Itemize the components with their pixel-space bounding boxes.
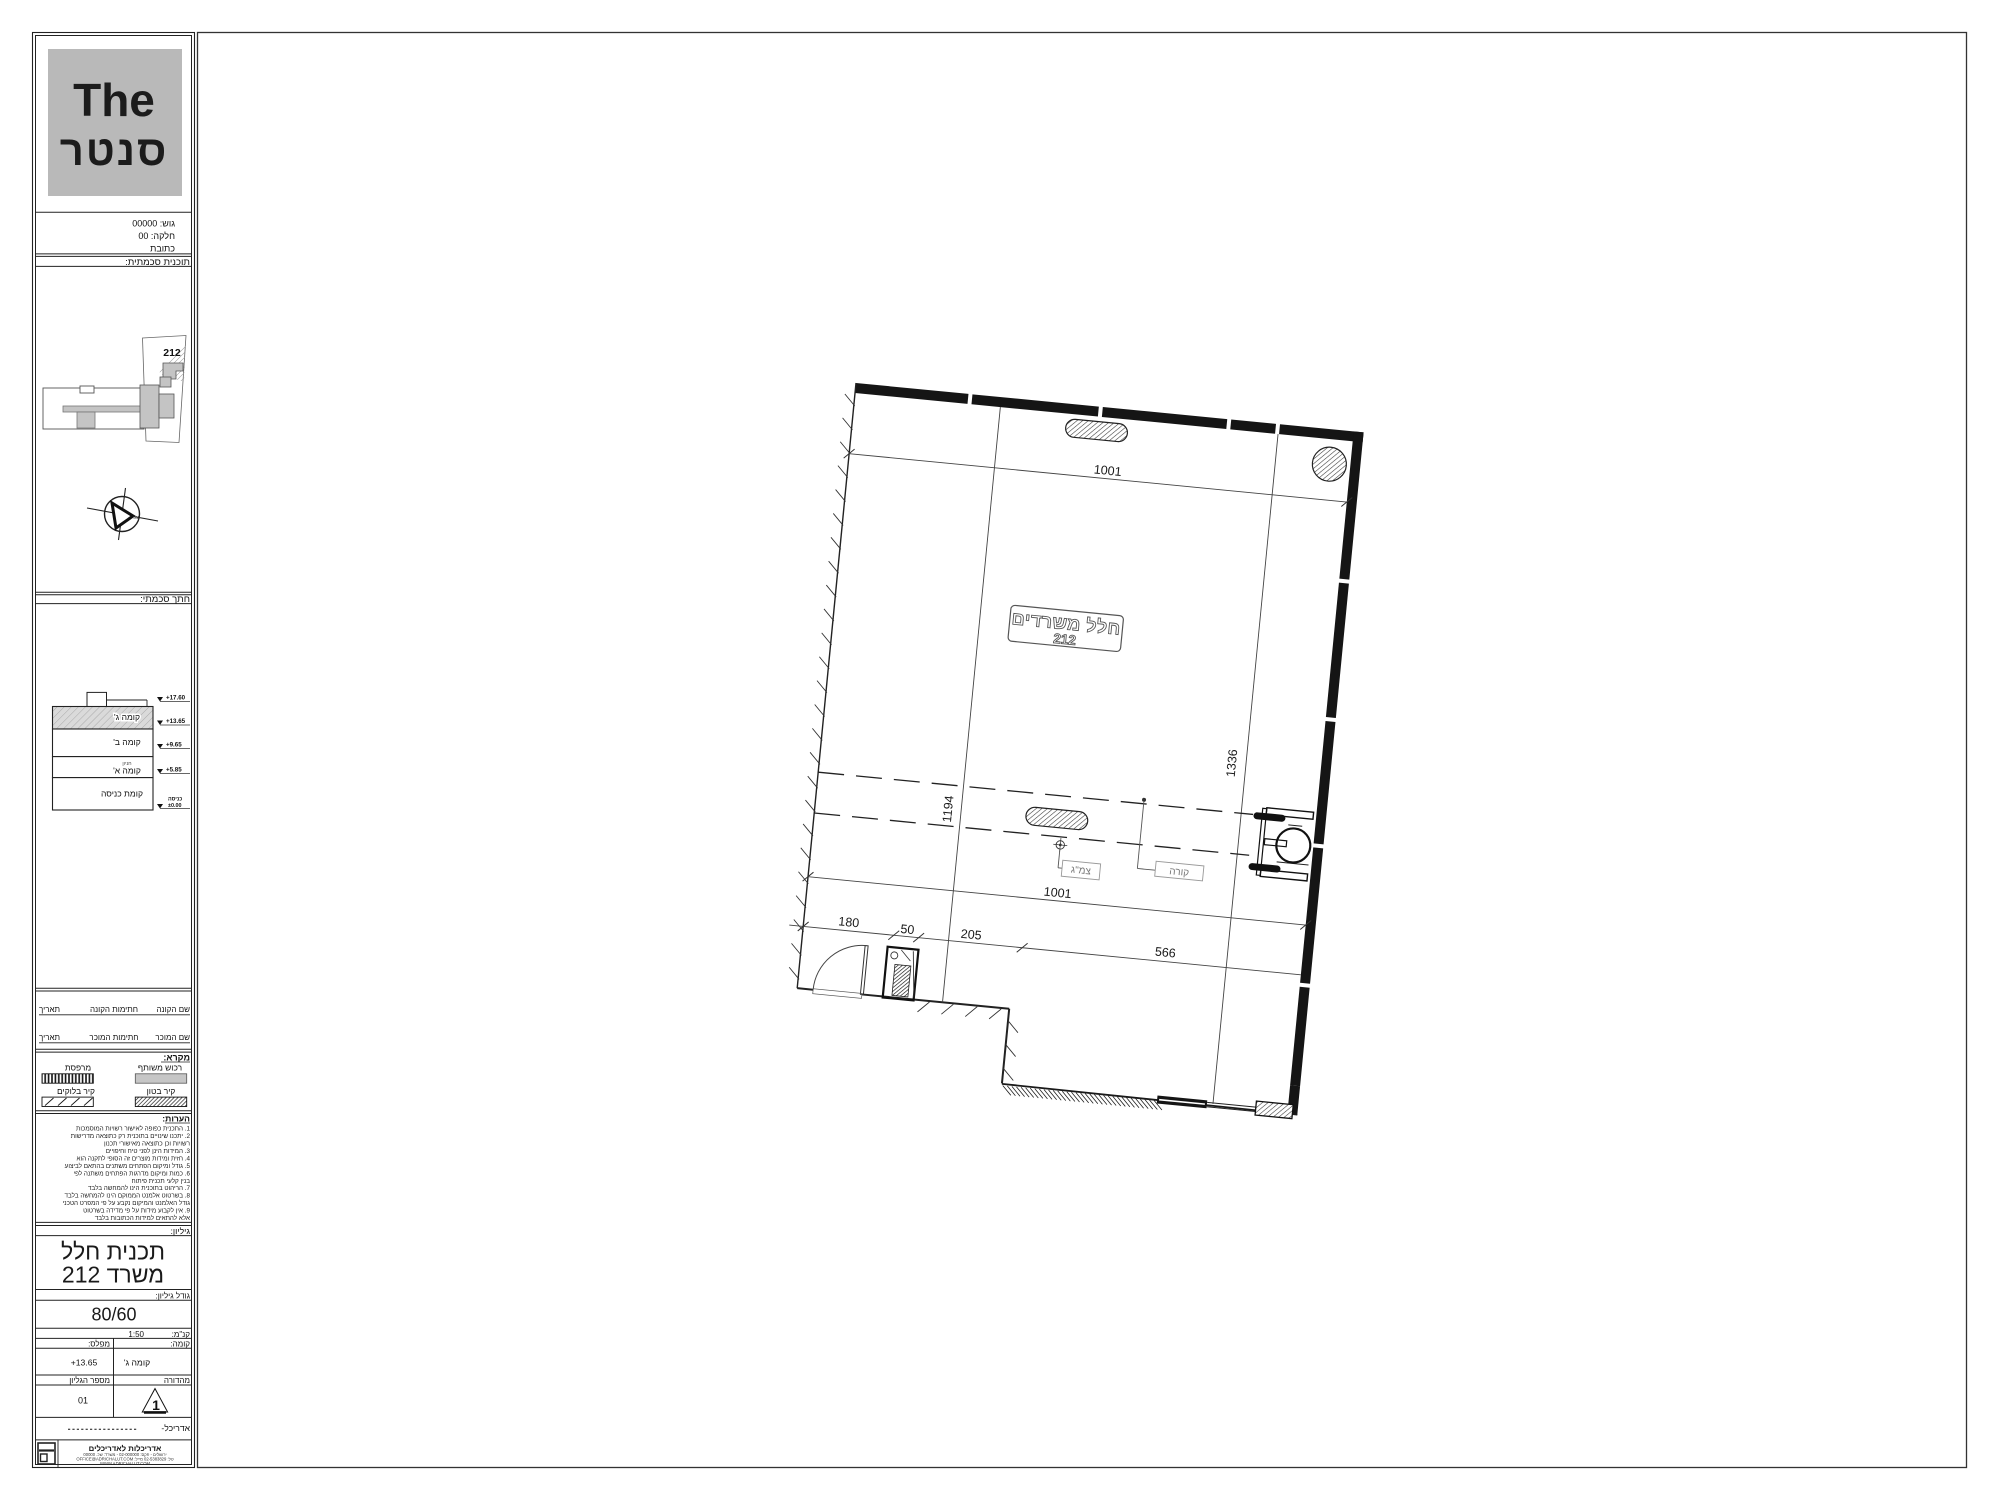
svg-text:קנ"מ:: קנ"מ: xyxy=(172,1330,191,1339)
svg-text:1001: 1001 xyxy=(1043,885,1072,902)
svg-text:קומת כניסה: קומת כניסה xyxy=(101,789,143,799)
svg-text:בנין קלעי תכנית פיתוח: בנין קלעי תכנית פיתוח xyxy=(132,1177,191,1185)
svg-text:שם המוכר: שם המוכר xyxy=(155,1033,190,1042)
svg-text:+13.65: +13.65 xyxy=(166,718,186,725)
svg-text:חתימות המוכר: חתימות המוכר xyxy=(89,1033,138,1042)
svg-text:80/60: 80/60 xyxy=(91,1305,136,1325)
svg-text:1: 1 xyxy=(152,1397,160,1413)
svg-text:205: 205 xyxy=(960,927,982,943)
svg-text:תאריך: תאריך xyxy=(39,1033,60,1042)
svg-text:1:50: 1:50 xyxy=(128,1330,144,1339)
svg-text:מספר הגליון: מספר הגליון xyxy=(69,1376,110,1385)
svg-text:כניסה: כניסה xyxy=(168,797,182,803)
svg-text:+9.65: +9.65 xyxy=(166,742,182,749)
svg-text:צמ"ג: צמ"ג xyxy=(1070,865,1092,878)
svg-text:1336: 1336 xyxy=(1224,749,1241,778)
svg-text:566: 566 xyxy=(1154,945,1176,961)
svg-text:2. יתכנו שינויים בתוכנית רק כת: 2. יתכנו שינויים בתוכנית רק כתוצאה מדריש… xyxy=(71,1133,191,1140)
svg-text:תאריך: תאריך xyxy=(39,1005,60,1014)
svg-text:9. אין לקבוע מידות על פי מדידה: 9. אין לקבוע מידות על פי מדידה בשרטוט xyxy=(83,1207,190,1215)
svg-text:קומה:: קומה: xyxy=(170,1339,190,1348)
svg-text:כתובת: כתובת xyxy=(150,244,175,254)
svg-text:+13.65: +13.65 xyxy=(71,1358,98,1368)
svg-text:212: 212 xyxy=(163,347,181,359)
svg-text:שם הקונה: שם הקונה xyxy=(156,1005,190,1014)
svg-text:01: 01 xyxy=(78,1396,88,1406)
svg-text:7. הריהוט בתוכנית הינו להמחשה: 7. הריהוט בתוכנית הינו להמחשה בלבד xyxy=(88,1184,191,1192)
svg-text:212: 212 xyxy=(1053,631,1077,648)
svg-text:+17.60: +17.60 xyxy=(166,695,186,702)
svg-text:קומה ג': קומה ג' xyxy=(114,712,140,722)
svg-text:קומה ג': קומה ג' xyxy=(124,1358,150,1368)
svg-text:קיר בטון: קיר בטון xyxy=(147,1086,176,1096)
svg-text:מקרא:: מקרא: xyxy=(163,1053,190,1063)
svg-text:גוש: 00000: גוש: 00000 xyxy=(132,219,175,229)
svg-text:הערות:: הערות: xyxy=(162,1114,190,1124)
svg-text:סנטר: סנטר xyxy=(60,127,169,174)
svg-text:1001: 1001 xyxy=(1093,462,1122,479)
svg-text:+5.85: +5.85 xyxy=(166,767,182,774)
svg-text:קומה ב': קומה ב' xyxy=(113,737,141,747)
svg-text:מפלס:: מפלס: xyxy=(88,1339,110,1348)
svg-text:גודל האלמנט והמיקום נקבע על פי: גודל האלמנט והמיקום נקבע על פי המפרט הטכ… xyxy=(63,1199,191,1207)
svg-text:5. גודל ומיקום הפתחים משתנים ב: 5. גודל ומיקום הפתחים משתנים בהתאם לביצו… xyxy=(65,1162,191,1170)
svg-text:3. המידות הינן לפני טיח וחיפוי: 3. המידות הינן לפני טיח וחיפויים xyxy=(106,1147,191,1155)
svg-text:משרד 212: משרד 212 xyxy=(62,1262,164,1288)
svg-text:180: 180 xyxy=(838,914,860,930)
svg-text:6. כמות ומיקום מדרגות הפתחים מ: 6. כמות ומיקום מדרגות הפתחים משתנה לפי xyxy=(73,1169,190,1177)
svg-text:גיליון:: גיליון: xyxy=(170,1226,190,1236)
svg-text:קומה א': קומה א' xyxy=(113,766,141,776)
svg-text:צפ: צפ xyxy=(133,515,139,521)
svg-text:אדריכל-: אדריכל- xyxy=(161,1423,190,1433)
svg-text:50: 50 xyxy=(900,922,915,937)
svg-text:אלא להתאים למידות הכתובות בלבד: אלא להתאים למידות הכתובות בלבד xyxy=(95,1214,190,1222)
svg-text:חלקה: 00: חלקה: 00 xyxy=(138,231,175,241)
svg-text:מרפסת: מרפסת xyxy=(65,1063,92,1073)
svg-text:מהדורה: מהדורה xyxy=(164,1376,190,1385)
svg-text:±0.00: ±0.00 xyxy=(168,803,181,809)
svg-text:4. חזית ומידות מוצרים זה הסופי: 4. חזית ומידות מוצרים זה הסופי לתקנה הוא xyxy=(77,1154,191,1162)
svg-text:The: The xyxy=(73,74,155,126)
svg-text:1. התכנית כפופה לאישור רשויות: 1. התכנית כפופה לאישור רשויות המוסמכות xyxy=(76,1125,190,1133)
svg-text:1194: 1194 xyxy=(940,795,957,823)
svg-text:קיר בלוקים: קיר בלוקים xyxy=(57,1086,95,1096)
svg-text:גודל גיליון:: גודל גיליון: xyxy=(155,1292,190,1301)
svg-text:רכוש משותף: רכוש משותף xyxy=(138,1063,182,1073)
svg-text:8. בשרטוט אלמנט הממוקם הינו לה: 8. בשרטוט אלמנט הממוקם הינו להמחשה בלבד xyxy=(65,1192,191,1200)
svg-text:חתימות הקונה: חתימות הקונה xyxy=(90,1005,138,1014)
svg-text:WWW.ADRICHALUT.COM: WWW.ADRICHALUT.COM xyxy=(100,1461,151,1466)
svg-text:קורה: קורה xyxy=(1169,866,1190,879)
svg-text:רשויות וכן כתוצאה מאישורי תכנו: רשויות וכן כתוצאה מאישורי תכנון xyxy=(104,1141,190,1148)
